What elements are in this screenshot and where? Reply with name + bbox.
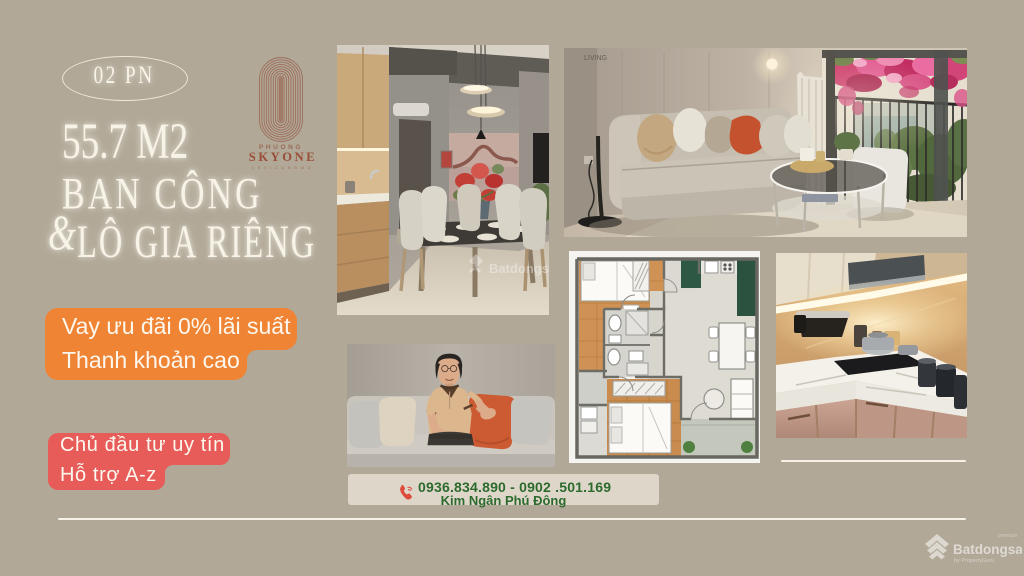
svg-text:by PropertyGuru: by PropertyGuru xyxy=(954,558,994,564)
svg-text:LIVING: LIVING xyxy=(584,55,607,62)
svg-text:SKYONE: SKYONE xyxy=(249,150,317,164)
svg-text:Batdongsan: Batdongsan xyxy=(489,261,549,276)
svg-text:Batdongsan: Batdongsan xyxy=(953,542,1022,557)
svg-text:premium: premium xyxy=(998,533,1017,539)
